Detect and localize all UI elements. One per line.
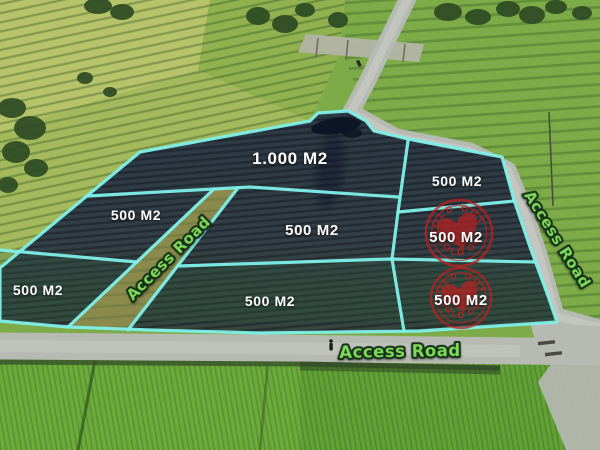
plot-label-bottom-center: 500 M2 <box>245 293 295 309</box>
plot-label-top-right: 500 M2 <box>432 173 482 189</box>
plot-label-1000m2: 1.000 M2 <box>252 149 328 168</box>
plot-label-left: 500 M2 <box>13 282 63 298</box>
plot-label-upper-left: 500 M2 <box>111 207 161 223</box>
aerial-land-plot-image: SOLD OUT SOLD OUT SOLD OUT SOLD OUT 1.00… <box>0 0 600 450</box>
person-figure <box>329 339 333 350</box>
plot-label-right-mid: 500 M2 <box>429 229 483 246</box>
plot-label-center: 500 M2 <box>285 222 339 239</box>
access-road-label-south: Access Road <box>339 341 461 362</box>
plot-label-right-bottom: 500 M2 <box>434 292 488 309</box>
